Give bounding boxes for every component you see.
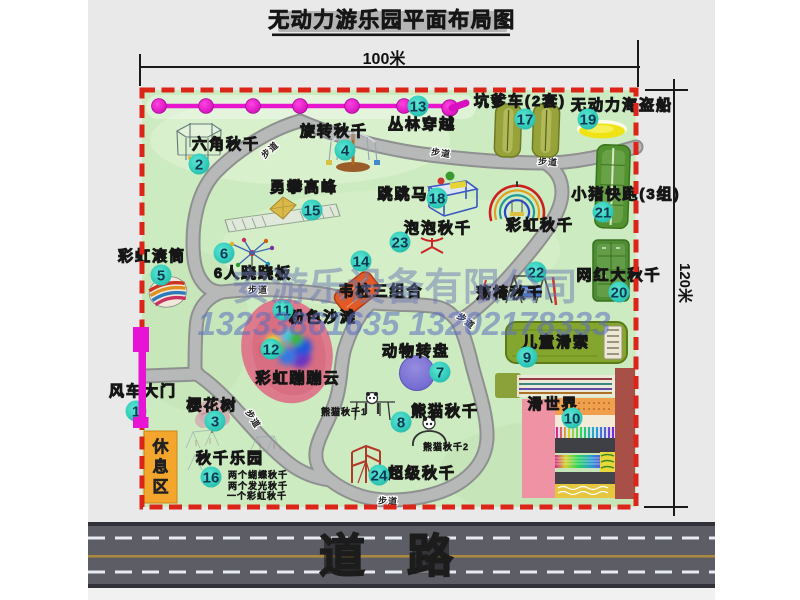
svg-text:无动力游乐园平面布局图: 无动力游乐园平面布局图 <box>268 8 516 32</box>
svg-text:丛林穿越: 丛林穿越 <box>388 115 456 133</box>
svg-text:4: 4 <box>341 143 350 160</box>
svg-text:六角秋千: 六角秋千 <box>192 135 260 153</box>
svg-text:120米: 120米 <box>676 263 694 304</box>
svg-text:19: 19 <box>580 112 597 129</box>
svg-text:两个蝴蝶秋千: 两个蝴蝶秋千 <box>228 469 288 480</box>
svg-text:息: 息 <box>152 457 168 476</box>
svg-text:17: 17 <box>517 112 534 129</box>
svg-text:两个发光秋千: 两个发光秋千 <box>228 480 288 491</box>
svg-text:熊猫秋千2: 熊猫秋千2 <box>423 441 469 452</box>
svg-text:20: 20 <box>611 285 628 302</box>
svg-text:18: 18 <box>429 191 446 208</box>
svg-text:安游乐设备有限公司: 安游乐设备有限公司 <box>232 267 579 309</box>
svg-text:13: 13 <box>410 99 427 116</box>
svg-text:路: 路 <box>407 530 454 582</box>
svg-text:旋转秋千: 旋转秋千 <box>299 122 368 140</box>
svg-text:100米: 100米 <box>363 49 407 68</box>
svg-text:8: 8 <box>397 415 405 432</box>
svg-text:彩虹秋千: 彩虹秋千 <box>505 216 574 234</box>
svg-text:道: 道 <box>319 530 365 582</box>
svg-text:23: 23 <box>392 235 409 252</box>
svg-text:13233861635 13202178333: 13233861635 13202178333 <box>198 305 611 342</box>
svg-text:16: 16 <box>203 470 220 487</box>
svg-text:小猪快跑(3组): 小猪快跑(3组) <box>571 185 680 203</box>
svg-text:泡泡秋千: 泡泡秋千 <box>404 219 472 237</box>
svg-text:超级秋千: 超级秋千 <box>387 464 456 482</box>
svg-text:熊猫秋千: 熊猫秋千 <box>411 402 479 420</box>
svg-text:7: 7 <box>436 365 444 382</box>
svg-text:3: 3 <box>211 414 219 431</box>
svg-text:24: 24 <box>371 468 388 485</box>
svg-text:跳跳马: 跳跳马 <box>377 185 428 203</box>
svg-text:休: 休 <box>151 437 169 456</box>
svg-text:彩虹滚筒: 彩虹滚筒 <box>117 247 186 265</box>
svg-text:12: 12 <box>263 342 280 359</box>
svg-text:15: 15 <box>304 203 321 220</box>
svg-text:网红大秋千: 网红大秋千 <box>576 266 661 284</box>
svg-text:21: 21 <box>595 205 612 222</box>
svg-text:9: 9 <box>523 350 531 367</box>
svg-text:10: 10 <box>564 411 581 428</box>
svg-text:秋千乐园: 秋千乐园 <box>196 449 264 467</box>
svg-text:2: 2 <box>195 157 203 174</box>
svg-text:动物转盘: 动物转盘 <box>382 342 450 360</box>
svg-text:熊猫秋千1: 熊猫秋千1 <box>321 406 367 417</box>
svg-text:彩虹蹦蹦云: 彩虹蹦蹦云 <box>254 369 340 387</box>
svg-text:勇攀高峰: 勇攀高峰 <box>270 178 338 196</box>
svg-text:区: 区 <box>152 478 168 496</box>
svg-text:5: 5 <box>157 268 165 285</box>
svg-text:坑爹车(2套): 坑爹车(2套) <box>474 92 566 110</box>
svg-text:一个彩虹秋千: 一个彩虹秋千 <box>227 490 287 501</box>
svg-text:6: 6 <box>220 246 228 263</box>
